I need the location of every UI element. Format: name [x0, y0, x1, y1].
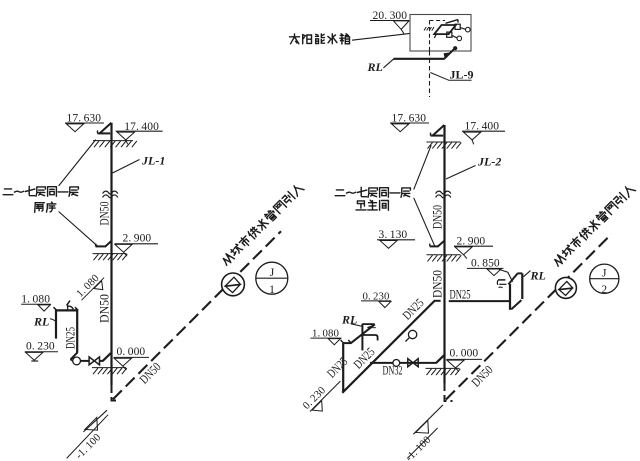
svg-text:RL: RL	[33, 315, 49, 329]
svg-text:2: 2	[601, 284, 607, 296]
svg-text:JL-2: JL-2	[477, 155, 501, 169]
svg-text:1: 1	[269, 284, 275, 296]
svg-text:RL: RL	[530, 269, 546, 283]
svg-text:DN50: DN50	[431, 270, 445, 298]
svg-text:DN25: DN25	[64, 327, 78, 349]
svg-text:JL-9: JL-9	[450, 68, 474, 82]
svg-text:0. 230: 0. 230	[26, 340, 55, 352]
svg-text:RL: RL	[367, 60, 383, 74]
svg-text:DN32: DN32	[383, 364, 403, 378]
svg-text:DN50: DN50	[431, 205, 445, 229]
svg-text:DN50: DN50	[98, 202, 112, 226]
svg-text:JL-1: JL-1	[141, 154, 165, 168]
svg-text:2. 900: 2. 900	[123, 233, 152, 245]
svg-text:J: J	[602, 268, 607, 280]
svg-text:0. 000: 0. 000	[450, 348, 479, 360]
svg-text:DN25: DN25	[450, 288, 471, 302]
svg-text:0. 850: 0. 850	[471, 258, 500, 270]
svg-text:3. 130: 3. 130	[379, 229, 408, 241]
svg-text:J: J	[270, 267, 275, 279]
svg-text:DN50: DN50	[98, 294, 112, 323]
svg-text:0. 000: 0. 000	[117, 346, 146, 358]
